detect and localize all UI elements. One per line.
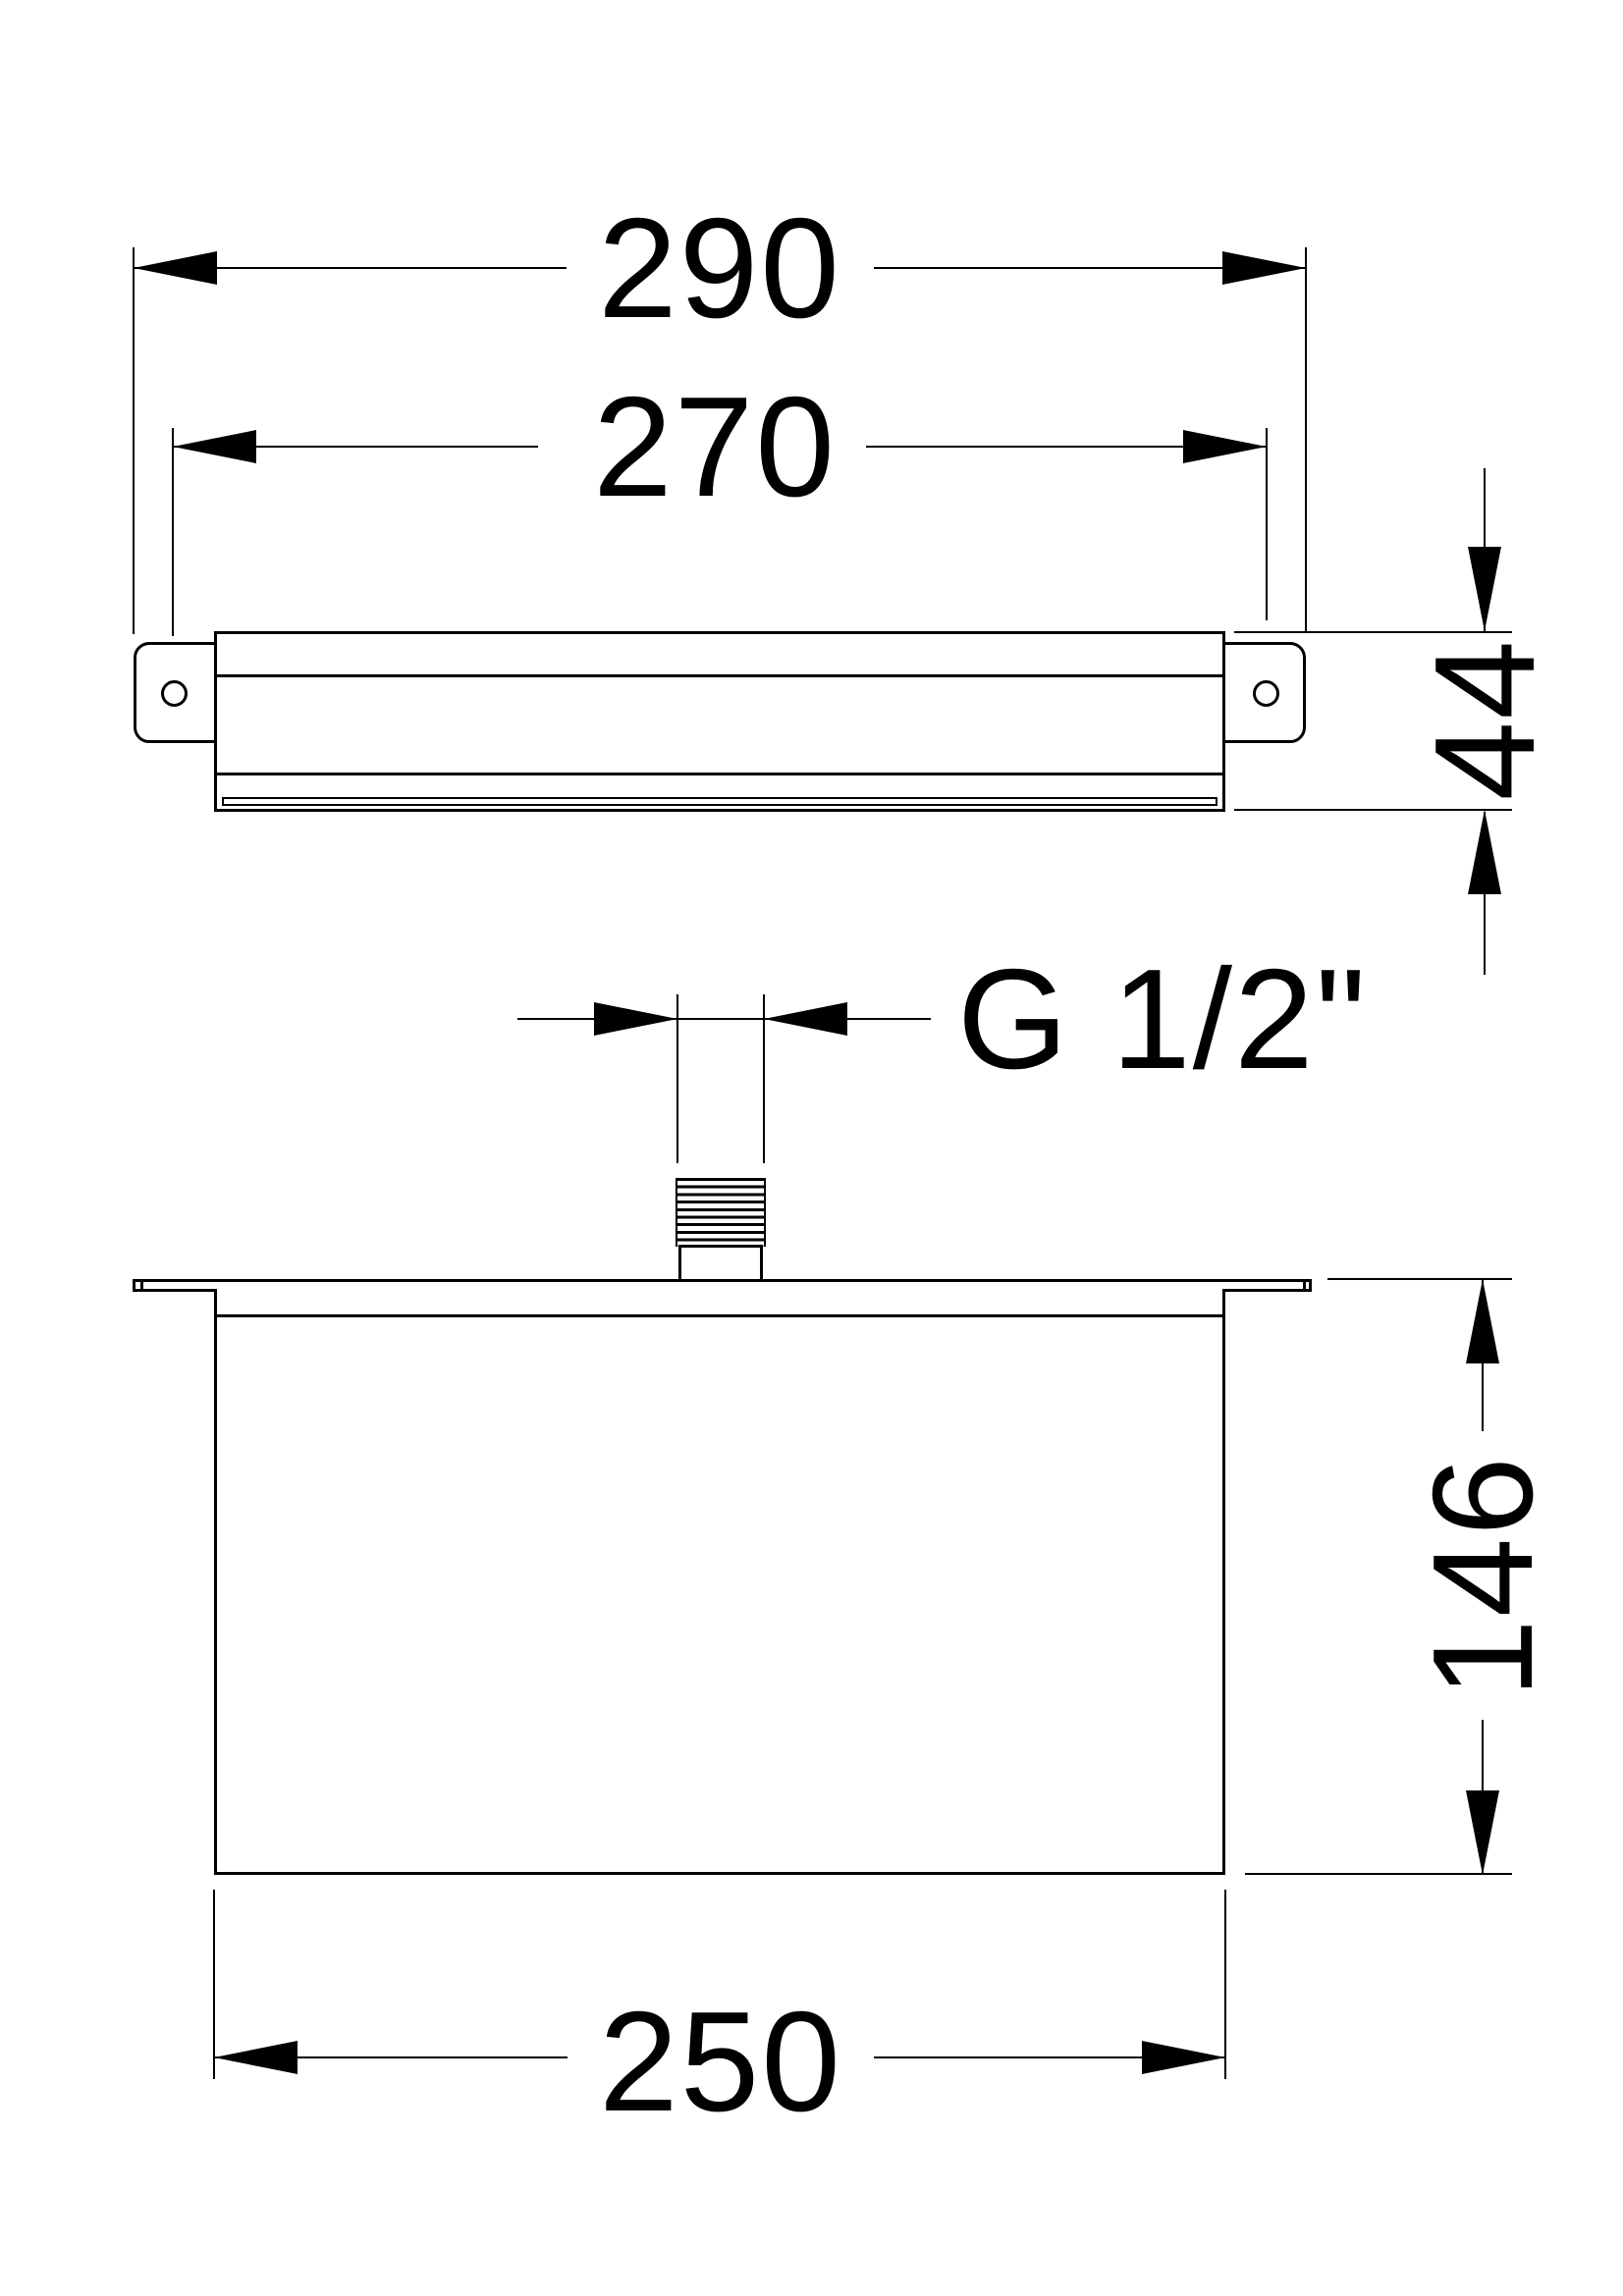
dim-270-arrow-right <box>1183 430 1267 463</box>
dim-146-arrow-top <box>1466 1279 1499 1363</box>
dim-270-label: 270 <box>538 373 892 520</box>
extension-line-270-left <box>172 428 174 636</box>
extension-line-290-right <box>1305 247 1307 632</box>
extension-line-270-right <box>1266 428 1268 620</box>
side-view-body <box>214 631 1225 812</box>
dim-thread-arrow-left <box>594 1002 677 1036</box>
dim-44-arrow-bottom <box>1468 810 1501 894</box>
extension-line-146-bottom <box>1245 1873 1512 1875</box>
flange-lip-left-tick <box>140 1279 143 1292</box>
dim-250-label: 250 <box>544 1988 897 2135</box>
extension-line-250-left <box>213 1890 215 2079</box>
extension-line-146-top <box>1327 1278 1512 1280</box>
flange-inner-line <box>214 1314 1225 1317</box>
thread-neck <box>678 1245 763 1282</box>
dim-270-arrow-left <box>173 430 256 463</box>
dim-290-label: 290 <box>543 194 896 342</box>
extension-line-290-left <box>133 247 135 634</box>
ceiling-flange-lip-right <box>1222 1279 1312 1292</box>
dim-thread-arrow-right <box>764 1002 847 1036</box>
extension-line-250-right <box>1224 1890 1226 2079</box>
bracket-hole-right <box>1253 680 1279 707</box>
dim-146-arrow-bottom <box>1466 1790 1499 1875</box>
side-view-rail-line <box>214 674 1225 677</box>
dim-250-arrow-right <box>1142 2041 1225 2074</box>
dim-44-arrow-top <box>1468 547 1501 631</box>
dim-thread-line-middle <box>677 1018 764 1020</box>
dim-290-arrow-left <box>134 251 217 285</box>
technical-drawing-canvas: 290 270 44 G 1/2" 146 250 <box>0 0 1623 2296</box>
ceiling-flange-lip-left <box>133 1279 217 1292</box>
dim-44-label: 44 <box>1411 621 1558 818</box>
dim-250-arrow-left <box>214 2041 298 2074</box>
spray-plate-strip <box>222 797 1217 806</box>
front-view-box <box>214 1279 1225 1875</box>
dim-146-label: 146 <box>1409 1429 1556 1724</box>
bracket-hole-left <box>161 680 188 707</box>
side-view-lower-line <box>214 773 1225 775</box>
dim-290-arrow-right <box>1222 251 1306 285</box>
thread-size-label: G 1/2" <box>957 945 1389 1093</box>
flange-lip-right-tick <box>1303 1279 1306 1292</box>
thread-nipple <box>676 1178 766 1247</box>
